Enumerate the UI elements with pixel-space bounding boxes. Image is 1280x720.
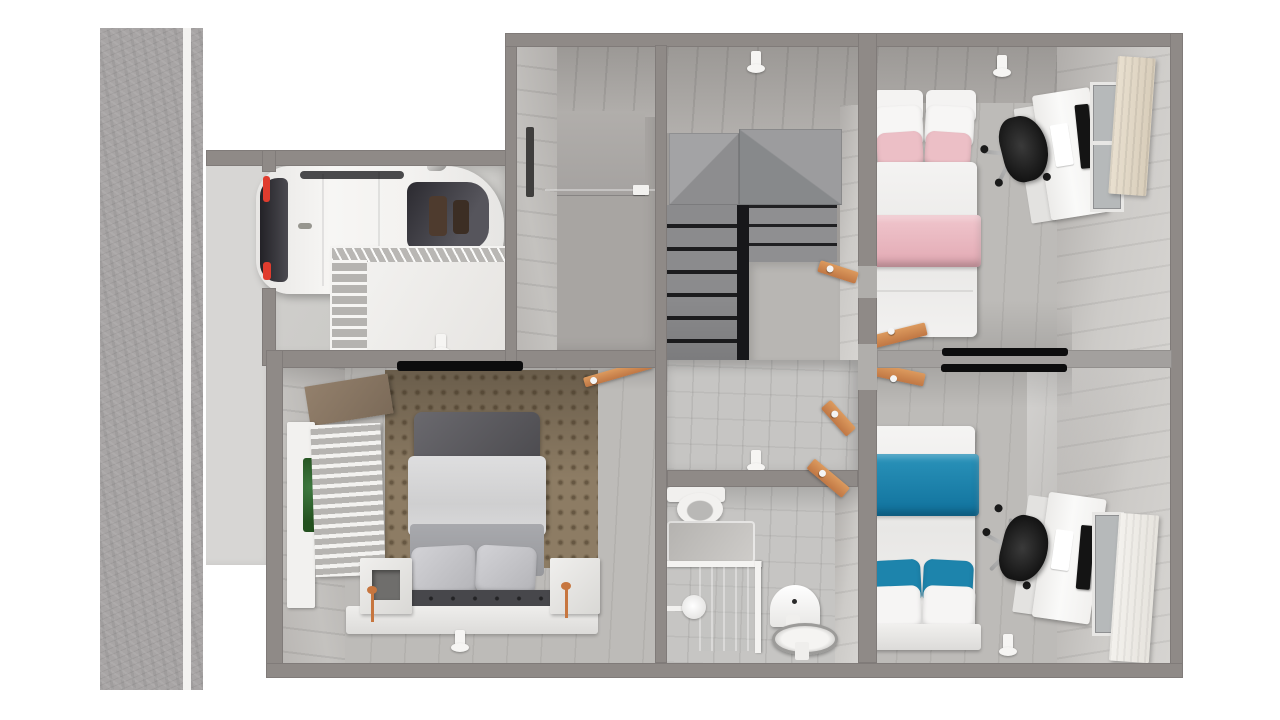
bedroom-master <box>283 368 655 663</box>
pedestal-basin-stem <box>795 642 809 660</box>
stair-shadow <box>667 295 737 360</box>
chair-caster <box>1042 172 1052 182</box>
door-knob <box>830 409 840 419</box>
wall-master-left <box>266 350 283 678</box>
wall-house-bottom <box>266 663 1183 678</box>
wall-tv <box>941 364 1067 372</box>
entry-closet-room <box>517 45 655 360</box>
chair-seat <box>994 511 1055 586</box>
window-blinds <box>310 423 385 577</box>
stair-landing <box>749 262 840 360</box>
car-roof-rail <box>300 171 404 179</box>
doorway-opening <box>858 266 877 298</box>
bathroom-right-wall-face <box>835 487 858 663</box>
stairhall-right-wall-face <box>840 105 858 360</box>
stair-void <box>737 205 749 360</box>
bedroom-pink <box>877 45 1170 352</box>
stairhall-ceiling-slope <box>667 45 858 133</box>
door-knob <box>818 468 828 478</box>
floorplan-render <box>0 0 1280 720</box>
street-lane-main <box>100 28 183 690</box>
car-seat <box>453 200 469 234</box>
entry-wall-panel <box>557 111 645 196</box>
ceiling-light <box>751 450 761 467</box>
light-switch <box>633 185 649 195</box>
light-base <box>999 647 1017 656</box>
car-door-seam <box>322 174 324 286</box>
bathroom-floor <box>667 487 858 663</box>
car-seat <box>429 196 447 236</box>
light-base <box>993 68 1011 77</box>
shower-glass-frame-v <box>755 561 761 653</box>
street-edge-line <box>183 28 191 690</box>
table-lamp-copper-head <box>561 582 571 590</box>
wall-house-left-upper <box>505 33 517 366</box>
nightstand-inset <box>372 570 400 600</box>
door-knob <box>887 327 895 335</box>
door-knob <box>589 376 598 385</box>
wall-slot-window <box>526 127 534 197</box>
bed-master <box>396 412 558 630</box>
shower-glass-panel <box>699 567 755 651</box>
nightstand-right <box>550 558 600 614</box>
table-lamp-copper-head <box>367 586 377 594</box>
bathtub <box>667 521 755 563</box>
wall-house-top <box>505 33 1183 47</box>
light-base <box>747 64 765 73</box>
washbasin-faucet <box>792 599 797 604</box>
ceiling-light <box>997 55 1007 72</box>
ceiling-light <box>436 334 446 351</box>
entry-left-wall-face <box>517 45 557 360</box>
duvet-fold-line <box>877 290 973 292</box>
blanket-teal <box>867 454 979 516</box>
wall-garage-left-stub-top <box>262 150 276 172</box>
car-taillight <box>263 176 270 202</box>
car-taillight <box>263 262 271 280</box>
street-lane-shoulder <box>191 28 203 690</box>
wall-center-partition <box>655 45 667 663</box>
door-knob <box>826 264 835 273</box>
wall-tv <box>397 361 523 370</box>
bed-blue <box>867 426 979 650</box>
wall-tv <box>942 348 1068 356</box>
stair-hall <box>667 45 858 360</box>
car-windshield <box>407 182 489 250</box>
stair-winder-tread <box>669 133 739 205</box>
stair-winder-tread <box>739 129 842 205</box>
car-door-handle <box>298 223 312 229</box>
rack-ladder-side <box>332 260 367 356</box>
chair-caster <box>994 503 1004 513</box>
table-lamp-copper <box>565 588 568 618</box>
blanket-pink <box>869 215 981 267</box>
ceiling-light <box>455 630 465 647</box>
bed-pink <box>871 90 979 337</box>
bed-platform <box>867 624 981 650</box>
light-base <box>451 643 469 652</box>
table-lamp-copper <box>371 592 374 622</box>
wall-garage-top <box>206 150 517 166</box>
bedroom-blue <box>877 368 1170 663</box>
ceiling-light <box>751 51 761 68</box>
pillow-silver <box>475 544 537 595</box>
ceiling-light <box>1003 634 1013 651</box>
chair-caster <box>1022 581 1032 591</box>
shelving-rack <box>332 248 510 356</box>
doorway-opening <box>858 344 877 390</box>
shower-head <box>682 595 706 619</box>
